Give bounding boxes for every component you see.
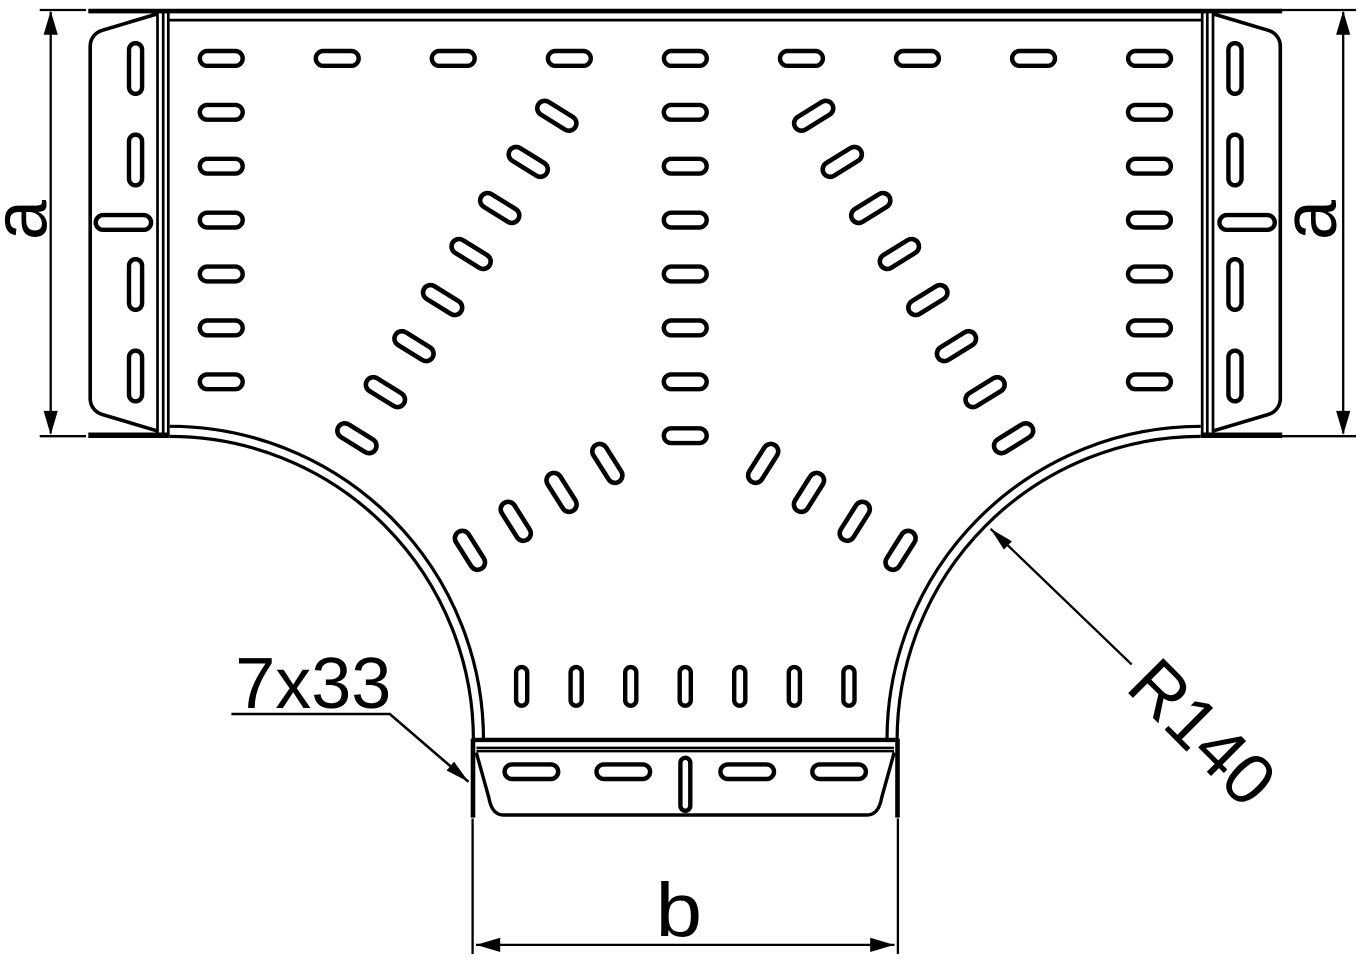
svg-text:a: a [0,200,63,240]
svg-text:b: b [656,867,702,952]
svg-text:7x33: 7x33 [235,644,391,724]
svg-text:R140: R140 [1113,644,1291,822]
svg-text:a: a [1265,200,1352,240]
